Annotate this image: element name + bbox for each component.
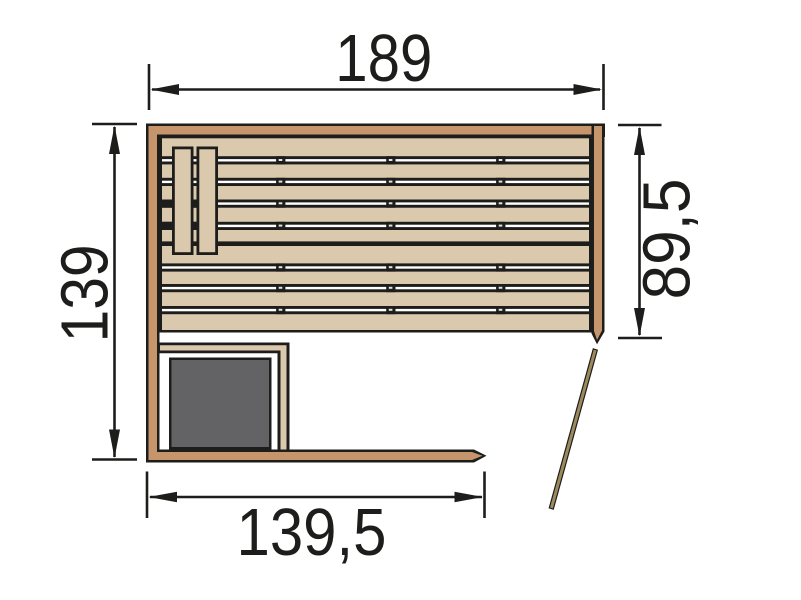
svg-text:139,5: 139,5 xyxy=(237,495,387,570)
svg-text:89,5: 89,5 xyxy=(630,179,705,300)
svg-text:139: 139 xyxy=(48,244,123,342)
svg-text:189: 189 xyxy=(335,21,432,96)
